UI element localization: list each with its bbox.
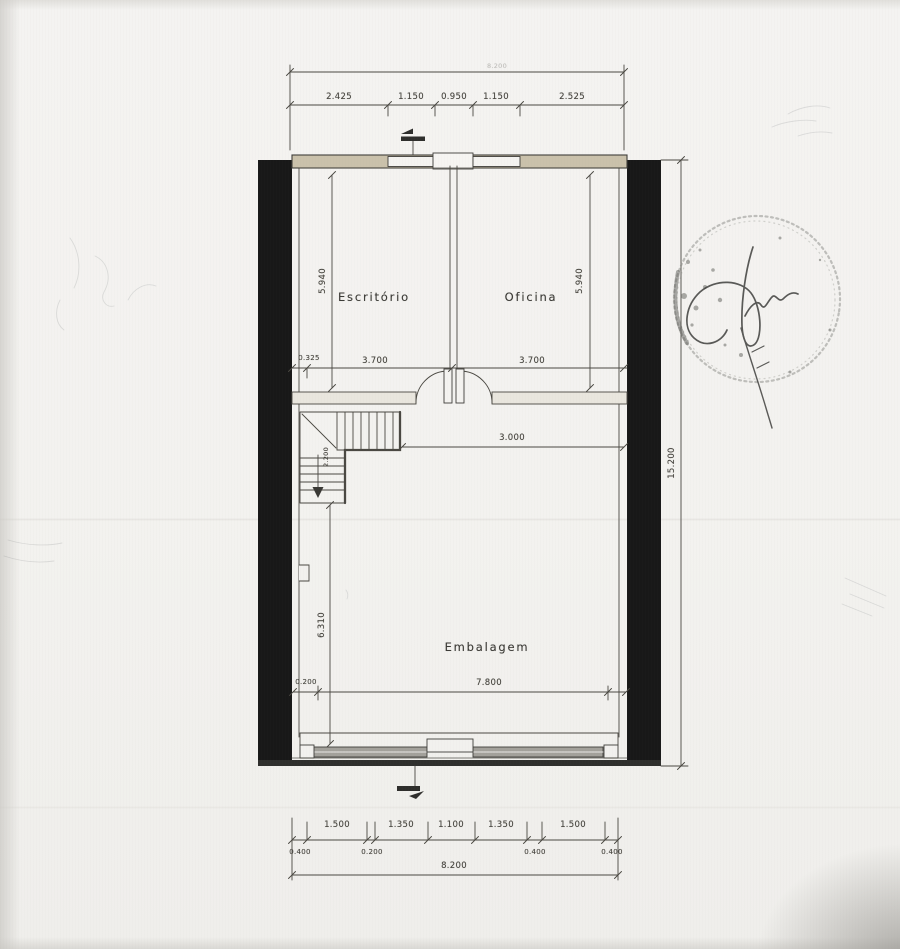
dim-top-segment-0: 2.425 [326, 92, 352, 102]
dim-footing-r2-3: 0.400 [601, 848, 623, 856]
dim-top-segment-4: 2.525 [559, 92, 585, 102]
page-corner-shadow [750, 839, 900, 949]
window-opening [433, 153, 473, 169]
dim-mid-0: 0.325 [298, 354, 320, 362]
dim-height-right: 5.940 [575, 268, 585, 294]
wall-notch [299, 565, 309, 581]
dim-top-segment-2: 0.950 [441, 92, 467, 102]
door-threshold [427, 739, 473, 752]
hall-dimension-line [399, 444, 628, 451]
staircase [300, 412, 400, 503]
dim-bottom-inner-1: 7.800 [476, 678, 502, 688]
dim-footing-r2-1: 0.200 [361, 848, 383, 856]
dim-mid-2: 3.700 [519, 356, 545, 366]
dim-bottom-inner-0: 0.200 [295, 678, 317, 686]
exit-marker-icon [397, 766, 424, 799]
dim-footing-r1-2: 1.100 [438, 820, 464, 830]
double-doors [416, 369, 492, 403]
bottom-wall [292, 733, 627, 758]
stamp [661, 203, 853, 428]
dim-stair-width: 2.200 [322, 447, 330, 467]
dim-footing-r1-3: 1.350 [488, 820, 514, 830]
dim-top-total: 8.200 [487, 62, 507, 70]
pencil-scribbles [4, 106, 886, 616]
floor-plan-drawing [0, 0, 900, 949]
dim-footing-r1-4: 1.500 [560, 820, 586, 830]
door-leaf [444, 369, 452, 403]
dim-top-segment-3: 1.150 [483, 92, 509, 102]
door-leaf [456, 369, 464, 403]
dim-footing-r2-0: 0.400 [289, 848, 311, 856]
exterior-walls [258, 153, 661, 766]
dim-footing-r1-1: 1.350 [388, 820, 414, 830]
room-label-embalagem: Embalagem [445, 640, 530, 654]
dim-overall-height: 15.200 [667, 447, 677, 479]
dim-footing-r2-2: 0.400 [524, 848, 546, 856]
window-opening [473, 157, 520, 167]
dim-mid-1: 3.700 [362, 356, 388, 366]
dim-embalagem-height: 6.310 [317, 612, 327, 638]
window-opening [388, 157, 435, 167]
embalagem-height-dimension [327, 502, 334, 748]
entrance-marker-icon [401, 129, 425, 157]
dim-top-segment-1: 1.150 [398, 92, 424, 102]
dim-footing-r1-0: 1.500 [324, 820, 350, 830]
scanned-page: 8.200 2.425 1.150 0.950 1.150 2.525 Escr… [0, 0, 900, 949]
dim-hall-width: 3.000 [499, 433, 525, 443]
signature [687, 247, 798, 428]
top-dimension-lines [287, 65, 628, 150]
bottom-inner-dimension-line [290, 686, 630, 700]
room-label-escritorio: Escritório [338, 290, 410, 304]
dim-footing-total: 8.200 [441, 861, 467, 871]
dim-height-left: 5.940 [318, 268, 328, 294]
room-label-oficina: Oficina [505, 290, 558, 304]
